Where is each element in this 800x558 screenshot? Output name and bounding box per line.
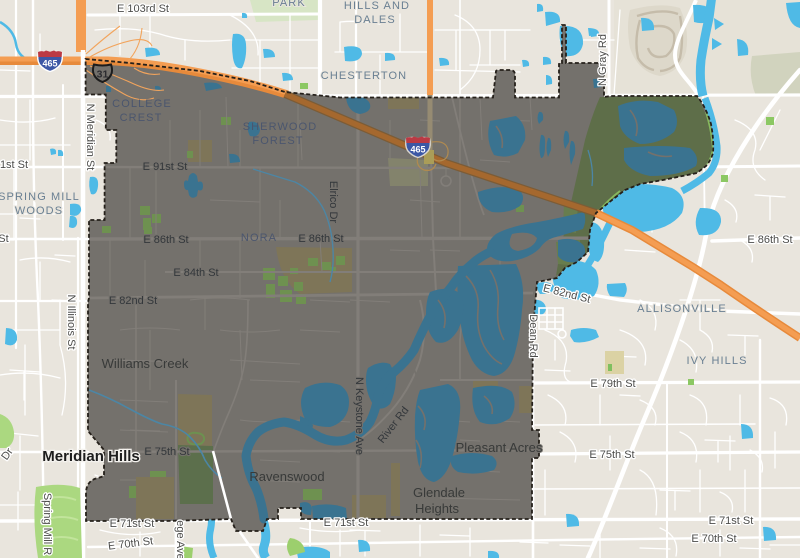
svg-text:ALLISONVILLE: ALLISONVILLE xyxy=(637,303,727,315)
svg-text:E 75th St: E 75th St xyxy=(144,446,189,458)
svg-text:NORA: NORA xyxy=(241,232,277,244)
svg-text:FOREST: FOREST xyxy=(252,135,303,147)
svg-text:E 86th St: E 86th St xyxy=(143,234,188,246)
svg-text:N Keystone Ave: N Keystone Ave xyxy=(353,377,365,455)
svg-text:E 71st St: E 71st St xyxy=(709,515,754,527)
svg-text:N Illinois St: N Illinois St xyxy=(65,294,77,349)
svg-text:E 86th St: E 86th St xyxy=(747,234,792,246)
svg-text:Meridian Hills: Meridian Hills xyxy=(42,448,140,465)
svg-text:SPRING MILL: SPRING MILL xyxy=(0,191,80,203)
svg-text:ege Ave: ege Ave xyxy=(174,520,186,558)
svg-text:Elrico Dr: Elrico Dr xyxy=(327,181,339,224)
svg-text:Williams Creek: Williams Creek xyxy=(102,356,189,371)
svg-text:31: 31 xyxy=(97,69,109,81)
svg-text:Ravenswood: Ravenswood xyxy=(249,469,324,484)
svg-text:E 82nd St: E 82nd St xyxy=(109,295,157,307)
svg-text:PARK: PARK xyxy=(272,0,306,9)
svg-text:Pleasant Acres: Pleasant Acres xyxy=(456,440,543,455)
svg-text:E 79th St: E 79th St xyxy=(590,378,635,390)
svg-text:E 71st St: E 71st St xyxy=(110,518,155,530)
svg-text:WOODS: WOODS xyxy=(15,205,63,217)
svg-text:465: 465 xyxy=(42,59,57,69)
svg-text:HILLS AND: HILLS AND xyxy=(344,0,410,12)
svg-text:COLLEGE: COLLEGE xyxy=(112,98,172,110)
svg-text:E 86th St: E 86th St xyxy=(0,233,9,245)
svg-text:E 71st St: E 71st St xyxy=(324,517,369,529)
svg-text:Spring Mill R: Spring Mill R xyxy=(41,493,53,555)
svg-text:E 86th St: E 86th St xyxy=(298,233,343,245)
svg-text:CHESTERTON: CHESTERTON xyxy=(321,70,407,82)
svg-text:N Meridian St: N Meridian St xyxy=(84,104,96,171)
svg-text:E 91st St: E 91st St xyxy=(143,161,188,173)
svg-text:Glendale: Glendale xyxy=(413,485,465,500)
svg-text:Heights: Heights xyxy=(415,501,460,516)
svg-text:E 103rd St: E 103rd St xyxy=(117,3,169,15)
svg-text:N Gray Rd: N Gray Rd xyxy=(597,34,609,86)
svg-text:E 75th St: E 75th St xyxy=(589,449,634,461)
svg-text:CREST: CREST xyxy=(120,112,163,124)
svg-text:IVY HILLS: IVY HILLS xyxy=(686,355,747,367)
svg-text:Dean Rd: Dean Rd xyxy=(527,314,539,357)
svg-text:1st St: 1st St xyxy=(0,159,28,171)
svg-text:465: 465 xyxy=(410,145,425,155)
svg-text:E 70th St: E 70th St xyxy=(691,533,736,545)
svg-text:DALES: DALES xyxy=(354,14,396,26)
svg-text:E 84th St: E 84th St xyxy=(173,267,218,279)
svg-text:SHERWOOD: SHERWOOD xyxy=(243,121,318,133)
